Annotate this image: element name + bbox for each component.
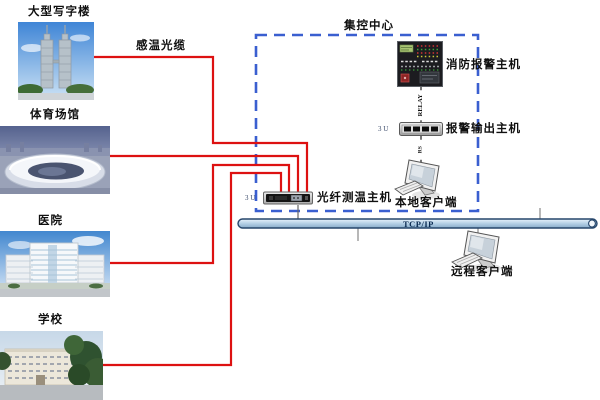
tcpip-bus-endcap — [589, 220, 596, 227]
label-stadium: 体育场馆 — [30, 110, 80, 122]
label-output-rack-unit: 3 U — [378, 126, 388, 133]
label-control-center: 集控中心 — [344, 21, 394, 33]
label-fiber-temp-host: 光纤测温主机 — [317, 193, 392, 205]
fire-alarm-system-diagram: 大型写字楼 体育场馆 — [0, 0, 600, 400]
label-alarm-output-host: 报警输出主机 — [446, 124, 521, 136]
photo-stadium — [0, 126, 110, 194]
label-remote-client: 远程客户端 — [451, 267, 514, 279]
fiber-temp-host-device — [263, 191, 313, 205]
label-local-client: 本地客户端 — [395, 198, 458, 210]
label-office-building: 大型写字楼 — [28, 7, 91, 19]
label-sensing-cable: 感温光缆 — [136, 41, 186, 53]
photo-office-building — [18, 22, 94, 100]
cable-line-hospital — [110, 165, 289, 263]
label-fire-alarm-host: 消防报警主机 — [446, 60, 521, 72]
label-tcpip-bus: TCP/IP — [403, 220, 434, 229]
local-client-computer-icon — [394, 158, 446, 202]
label-relay-link: RELAY — [418, 90, 425, 120]
cable-line-office — [94, 57, 307, 192]
label-serial-link: RS — [418, 140, 424, 160]
label-fiber-host-rack-unit: 3 U — [245, 195, 255, 202]
photo-school — [0, 331, 103, 400]
label-hospital: 医院 — [38, 216, 63, 228]
photo-hospital — [0, 231, 110, 297]
alarm-output-host-rack — [399, 122, 443, 136]
fire-alarm-host-panel — [397, 41, 443, 87]
label-school: 学校 — [38, 315, 63, 327]
